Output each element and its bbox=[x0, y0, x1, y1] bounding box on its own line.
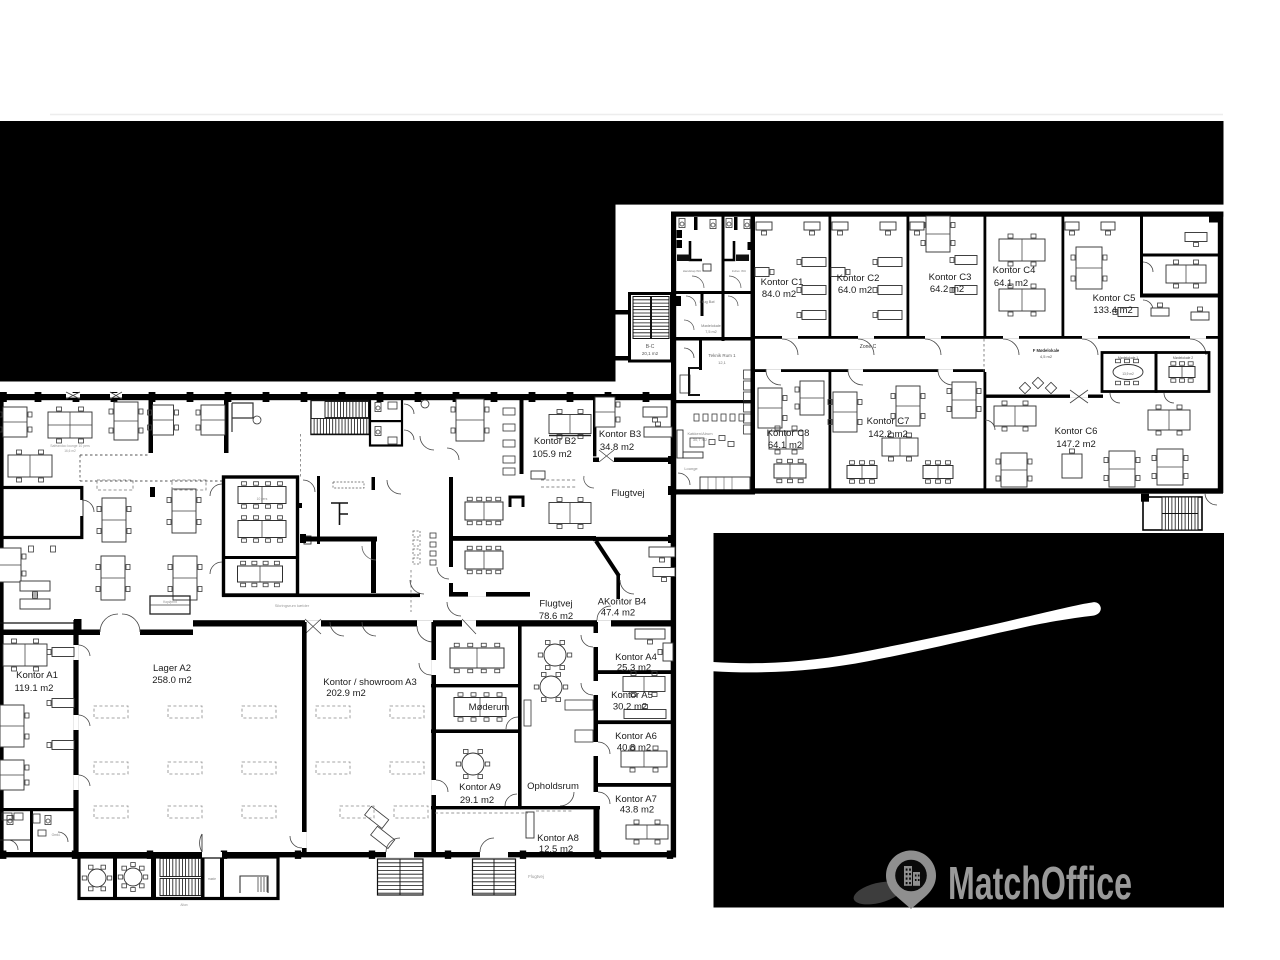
svg-text:Kontor C6: Kontor C6 bbox=[1055, 426, 1098, 437]
svg-text:Teknik Rum 1: Teknik Rum 1 bbox=[708, 353, 736, 358]
svg-text:Kontor B2: Kontor B2 bbox=[534, 436, 576, 447]
svg-text:Handicap WC: Handicap WC bbox=[683, 269, 702, 273]
svg-text:Kontor C4: Kontor C4 bbox=[993, 265, 1036, 276]
svg-text:Flugtvej: Flugtvej bbox=[528, 874, 544, 879]
svg-text:Indret. WC: Indret. WC bbox=[732, 269, 747, 273]
svg-text:16,6 m2: 16,6 m2 bbox=[64, 449, 76, 453]
svg-text:64.1 m2: 64.1 m2 bbox=[994, 278, 1028, 289]
svg-text:34.8 m2: 34.8 m2 bbox=[600, 442, 634, 453]
svg-text:47.4 m2: 47.4 m2 bbox=[601, 608, 635, 619]
svg-text:Omkl.: Omkl. bbox=[52, 833, 61, 837]
svg-text:43.8 m2: 43.8 m2 bbox=[620, 805, 654, 816]
svg-text:Møderum: Møderum bbox=[469, 702, 510, 713]
svg-text:Mødelokale 2: Mødelokale 2 bbox=[1173, 356, 1193, 360]
svg-text:12,1: 12,1 bbox=[718, 360, 727, 365]
svg-text:64.1 m2: 64.1 m2 bbox=[768, 440, 802, 451]
svg-text:møde: møde bbox=[208, 877, 216, 881]
svg-text:Kontor A5: Kontor A5 bbox=[611, 690, 653, 701]
svg-text:133.4 m2: 133.4 m2 bbox=[1093, 305, 1133, 316]
svg-text:Kontor A8: Kontor A8 bbox=[537, 833, 579, 844]
svg-text:Kontor C3: Kontor C3 bbox=[929, 272, 972, 283]
svg-text:84.0 m2: 84.0 m2 bbox=[762, 289, 796, 300]
svg-text:105.9 m2: 105.9 m2 bbox=[532, 449, 572, 460]
svg-text:Kopi/print: Kopi/print bbox=[163, 600, 177, 604]
svg-text:119.1 m2: 119.1 m2 bbox=[15, 683, 54, 694]
svg-text:Mødelokale: Mødelokale bbox=[701, 324, 721, 328]
svg-text:Zone C: Zone C bbox=[860, 344, 877, 350]
svg-text:20,1 m2: 20,1 m2 bbox=[642, 351, 659, 356]
svg-text:142.2 m2: 142.2 m2 bbox=[868, 429, 908, 440]
svg-text:7,5 m2: 7,5 m2 bbox=[705, 330, 717, 334]
svg-text:MatchOffice: MatchOffice bbox=[948, 857, 1132, 909]
svg-text:Lounge: Lounge bbox=[684, 466, 698, 471]
svg-text:78.6 m2: 78.6 m2 bbox=[539, 611, 573, 622]
svg-text:Køkken/Alrum: Køkken/Alrum bbox=[687, 431, 713, 436]
svg-text:4,5 m2: 4,5 m2 bbox=[1040, 354, 1053, 359]
svg-text:Kontor C2: Kontor C2 bbox=[837, 273, 880, 284]
svg-text:13,9 m2: 13,9 m2 bbox=[1122, 372, 1134, 376]
svg-text:40.8 m2: 40.8 m2 bbox=[617, 743, 651, 754]
svg-text:Altan: Altan bbox=[180, 903, 187, 907]
svg-text:Flugtvej: Flugtvej bbox=[539, 599, 572, 610]
svg-text:Flugtvej: Flugtvej bbox=[611, 488, 644, 499]
svg-text:I flug Bøl: I flug Bøl bbox=[700, 300, 715, 304]
svg-text:Kontor C7: Kontor C7 bbox=[867, 416, 910, 427]
svg-text:Sikringsrum kælder: Sikringsrum kælder bbox=[275, 603, 310, 608]
svg-text:F Mødelokale: F Mødelokale bbox=[1033, 348, 1060, 353]
svg-text:10 pers: 10 pers bbox=[257, 497, 268, 501]
svg-text:Kontor C8: Kontor C8 bbox=[767, 428, 810, 439]
svg-text:29.1 m2: 29.1 m2 bbox=[460, 795, 494, 806]
svg-text:30.2 m2: 30.2 m2 bbox=[613, 702, 647, 713]
svg-text:AKontor B4: AKontor B4 bbox=[598, 597, 647, 608]
svg-text:258.0 m2: 258.0 m2 bbox=[152, 675, 192, 686]
svg-text:Kontor A9: Kontor A9 bbox=[459, 782, 501, 793]
svg-text:64.2 m2: 64.2 m2 bbox=[930, 284, 964, 295]
svg-text:Kontor / showroom A3: Kontor / showroom A3 bbox=[323, 677, 416, 688]
svg-text:147.2 m2: 147.2 m2 bbox=[1056, 439, 1096, 450]
svg-text:Opholdsrum: Opholdsrum bbox=[527, 781, 579, 792]
svg-text:Kontor B3: Kontor B3 bbox=[599, 429, 641, 440]
svg-text:Kontor C5: Kontor C5 bbox=[1093, 293, 1136, 304]
svg-text:64.0 m2: 64.0 m2 bbox=[838, 285, 872, 296]
svg-text:Lager A2: Lager A2 bbox=[153, 663, 191, 674]
svg-text:Kontor A6: Kontor A6 bbox=[615, 731, 657, 742]
svg-text:B-C: B-C bbox=[646, 344, 655, 350]
svg-text:Mødelokale 1: Mødelokale 1 bbox=[1118, 356, 1138, 360]
svg-text:Kontor A7: Kontor A7 bbox=[615, 794, 657, 805]
svg-text:12.5 m2: 12.5 m2 bbox=[539, 844, 573, 855]
svg-text:Kontor C1: Kontor C1 bbox=[761, 277, 804, 288]
svg-text:202.9 m2: 202.9 m2 bbox=[326, 688, 366, 699]
svg-text:Safeandco lounge 10 pers: Safeandco lounge 10 pers bbox=[50, 444, 90, 448]
svg-text:30,7 m2: 30,7 m2 bbox=[693, 437, 708, 442]
svg-text:Kontor A4: Kontor A4 bbox=[615, 652, 657, 663]
svg-text:Kontor A1: Kontor A1 bbox=[16, 670, 58, 681]
